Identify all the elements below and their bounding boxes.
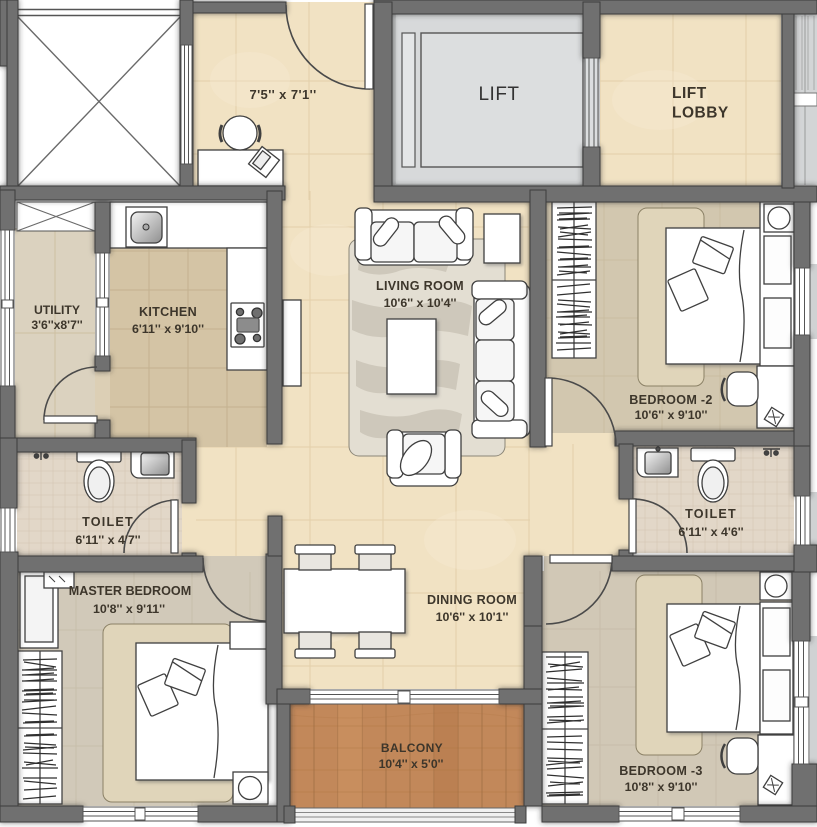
svg-text:10'6'' x 10'1'': 10'6'' x 10'1'' <box>436 610 509 624</box>
svg-text:UTILITY: UTILITY <box>34 303 80 317</box>
svg-text:6'11'' x 9'10'': 6'11'' x 9'10'' <box>132 322 204 336</box>
svg-text:10'8'' x 9'11'': 10'8'' x 9'11'' <box>93 602 165 616</box>
svg-text:BEDROOM -2: BEDROOM -2 <box>629 393 712 407</box>
svg-text:TOILET: TOILET <box>82 515 134 529</box>
svg-text:3'6''x8'7'': 3'6''x8'7'' <box>31 318 82 332</box>
svg-text:LIFT: LIFT <box>672 85 707 102</box>
svg-text:10'6'' x 10'4'': 10'6'' x 10'4'' <box>384 296 457 310</box>
svg-text:MASTER BEDROOM: MASTER BEDROOM <box>69 584 191 598</box>
svg-text:7'5'' x 7'1'': 7'5'' x 7'1'' <box>249 87 316 102</box>
svg-text:TOILET: TOILET <box>685 507 737 521</box>
svg-text:BALCONY: BALCONY <box>381 741 443 755</box>
svg-text:LIFT: LIFT <box>478 84 519 105</box>
svg-text:10'4'' x 5'0'': 10'4'' x 5'0'' <box>379 757 444 771</box>
svg-text:6'11'' x 4'7'': 6'11'' x 4'7'' <box>75 533 140 547</box>
svg-text:10'6'' x 9'10'': 10'6'' x 9'10'' <box>635 408 708 422</box>
svg-text:LIVING ROOM: LIVING ROOM <box>376 279 464 293</box>
svg-text:BEDROOM -3: BEDROOM -3 <box>619 764 702 778</box>
svg-text:10'8'' x 9'10'': 10'8'' x 9'10'' <box>625 780 698 794</box>
svg-text:DINING ROOM: DINING ROOM <box>427 593 517 607</box>
svg-text:6'11'' x 4'6'': 6'11'' x 4'6'' <box>678 525 743 539</box>
svg-text:KITCHEN: KITCHEN <box>139 305 197 319</box>
svg-text:LOBBY: LOBBY <box>672 105 729 122</box>
